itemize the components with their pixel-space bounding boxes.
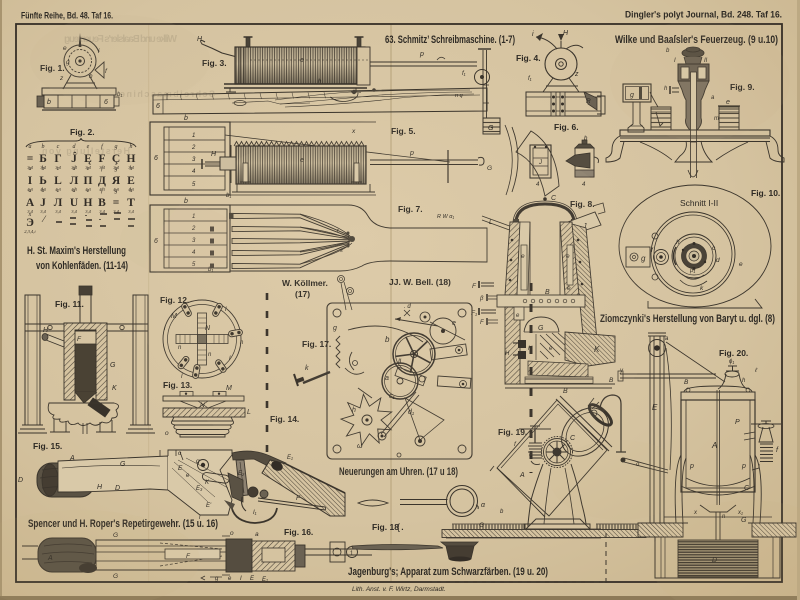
- svg-text:H. St. Maxim's Herstellung: H. St. Maxim's Herstellung: [27, 245, 126, 257]
- svg-text:U: U: [70, 197, 79, 209]
- svg-text:Л: Л: [70, 175, 79, 187]
- svg-text:b: b: [42, 166, 45, 172]
- svg-text:=: =: [27, 153, 34, 165]
- svg-text:f₁: f₁: [528, 76, 532, 82]
- svg-text:E₁: E₁: [262, 577, 268, 583]
- svg-text:A: A: [519, 472, 525, 479]
- svg-text:q: q: [196, 458, 200, 465]
- svg-text:h: h: [676, 239, 680, 246]
- svg-text:А: А: [26, 197, 35, 209]
- svg-text:1: 1: [192, 133, 195, 139]
- svg-text:h: h: [130, 166, 133, 172]
- svg-text:Л: Л: [54, 197, 63, 209]
- svg-text:e: e: [87, 188, 90, 194]
- svg-text:p: p: [689, 463, 694, 470]
- svg-text:e: e: [87, 166, 90, 172]
- svg-text:F: F: [98, 153, 105, 165]
- svg-text:e: e: [739, 261, 743, 268]
- svg-text:Ĵ: Ĵ: [71, 151, 77, 165]
- svg-text:6: 6: [154, 155, 158, 162]
- svg-text:P: P: [735, 419, 740, 426]
- svg-text:a: a: [29, 166, 32, 172]
- svg-text:o: o: [230, 530, 234, 537]
- svg-text:Fig. 2.: Fig. 2.: [70, 127, 95, 137]
- svg-text:Э: Э: [26, 217, 34, 229]
- svg-text:Fig. 4.: Fig. 4.: [516, 53, 541, 63]
- svg-text:a: a: [255, 531, 259, 538]
- svg-text:B: B: [684, 379, 689, 386]
- svg-text:G: G: [110, 362, 116, 369]
- svg-text:Б: Б: [39, 153, 47, 165]
- svg-text:b: b: [47, 99, 51, 106]
- svg-text:R: R: [586, 98, 591, 105]
- svg-text:Ç: Ç: [112, 153, 120, 165]
- svg-text:G: G: [479, 522, 484, 529]
- svg-text:von Kohlenfäden. (11-14): von Kohlenfäden. (11-14): [36, 260, 128, 272]
- svg-text:D: D: [18, 477, 23, 484]
- svg-text:p: p: [419, 51, 424, 58]
- svg-text:Fig. 10.: Fig. 10.: [751, 188, 780, 198]
- svg-text:H: H: [127, 153, 136, 165]
- svg-text:c: c: [57, 188, 60, 194]
- svg-text:T: T: [127, 197, 135, 209]
- svg-text:e: e: [300, 57, 304, 64]
- svg-text:K: K: [112, 385, 117, 392]
- svg-text:=: =: [113, 197, 120, 209]
- svg-text:d: d: [716, 257, 720, 264]
- svg-text:Fig. 16.: Fig. 16.: [284, 527, 313, 537]
- svg-text:z: z: [574, 71, 579, 78]
- svg-text:b: b: [42, 144, 45, 150]
- svg-text:В: В: [98, 197, 106, 209]
- svg-text:A: A: [69, 455, 75, 462]
- svg-text:A: A: [711, 441, 717, 450]
- svg-text:I₁: I₁: [253, 510, 257, 516]
- svg-text:E: E: [178, 465, 183, 472]
- svg-text:Д: Д: [98, 175, 106, 187]
- svg-text:f₁: f₁: [462, 71, 466, 77]
- svg-text:e: e: [87, 144, 90, 150]
- svg-text:a: a: [29, 188, 32, 194]
- svg-text:I: I: [28, 175, 33, 187]
- svg-text:p: p: [741, 463, 746, 470]
- svg-text:Ę: Ę: [84, 153, 92, 165]
- svg-text:o: o: [165, 430, 169, 437]
- svg-text:6: 6: [156, 103, 160, 110]
- svg-text:ϕ₁: ϕ₁: [729, 359, 734, 365]
- svg-text:β₁: β₁: [689, 268, 695, 274]
- svg-text:L: L: [54, 175, 62, 187]
- svg-text:{: {: [397, 522, 400, 532]
- svg-text:b: b: [42, 188, 45, 194]
- svg-text:E₂: E₂: [238, 471, 245, 477]
- svg-text:E: E: [127, 175, 135, 187]
- svg-text:c: c: [57, 144, 60, 150]
- svg-text:2: 2: [191, 145, 196, 151]
- svg-text:g: g: [115, 188, 118, 194]
- svg-text:E': E': [206, 503, 212, 509]
- svg-text:h: h: [130, 188, 133, 194]
- svg-text:J: J: [40, 197, 46, 209]
- svg-text:h: h: [130, 144, 133, 150]
- svg-text:Jagenburg's; Apparat zum Schwa: Jagenburg's; Apparat zum Schwarzfärben. …: [348, 566, 548, 578]
- svg-text:E₃: E₃: [196, 486, 203, 492]
- svg-text:Fig. 6.: Fig. 6.: [554, 122, 579, 132]
- svg-text:Г: Г: [54, 153, 61, 165]
- svg-text:a: a: [29, 144, 32, 150]
- svg-text:c: c: [57, 166, 60, 172]
- svg-text:63. Schmitz’ Schreibmaschine.: 63. Schmitz’ Schreibmaschine. (1-7): [385, 34, 515, 46]
- svg-text:Dingler's polyt Journal, Bd. 2: Dingler's polyt Journal, Bd. 248. Taf 16…: [625, 10, 782, 20]
- svg-text:g: g: [115, 166, 118, 172]
- svg-text:D: D: [115, 485, 120, 492]
- svg-text:Lith. Anst. v. F. Wirtz, Darms: Lith. Anst. v. F. Wirtz, Darmstadt.: [352, 586, 446, 593]
- svg-text:E: E: [652, 403, 658, 412]
- svg-text:G: G: [120, 461, 126, 468]
- svg-text:Я: Я: [112, 175, 121, 187]
- svg-text:П: П: [84, 175, 93, 187]
- svg-text:Н: Н: [84, 197, 93, 209]
- svg-text:Fig. 15.: Fig. 15.: [33, 441, 62, 451]
- svg-text:n q: n q: [455, 93, 464, 99]
- svg-text:g: g: [115, 144, 118, 150]
- svg-text:b: b: [184, 115, 188, 122]
- svg-text:Schnitt I-II: Schnitt I-II: [680, 198, 718, 208]
- svg-text:Ь: Ь: [39, 175, 47, 187]
- svg-text:Fig. 20.: Fig. 20.: [719, 348, 748, 358]
